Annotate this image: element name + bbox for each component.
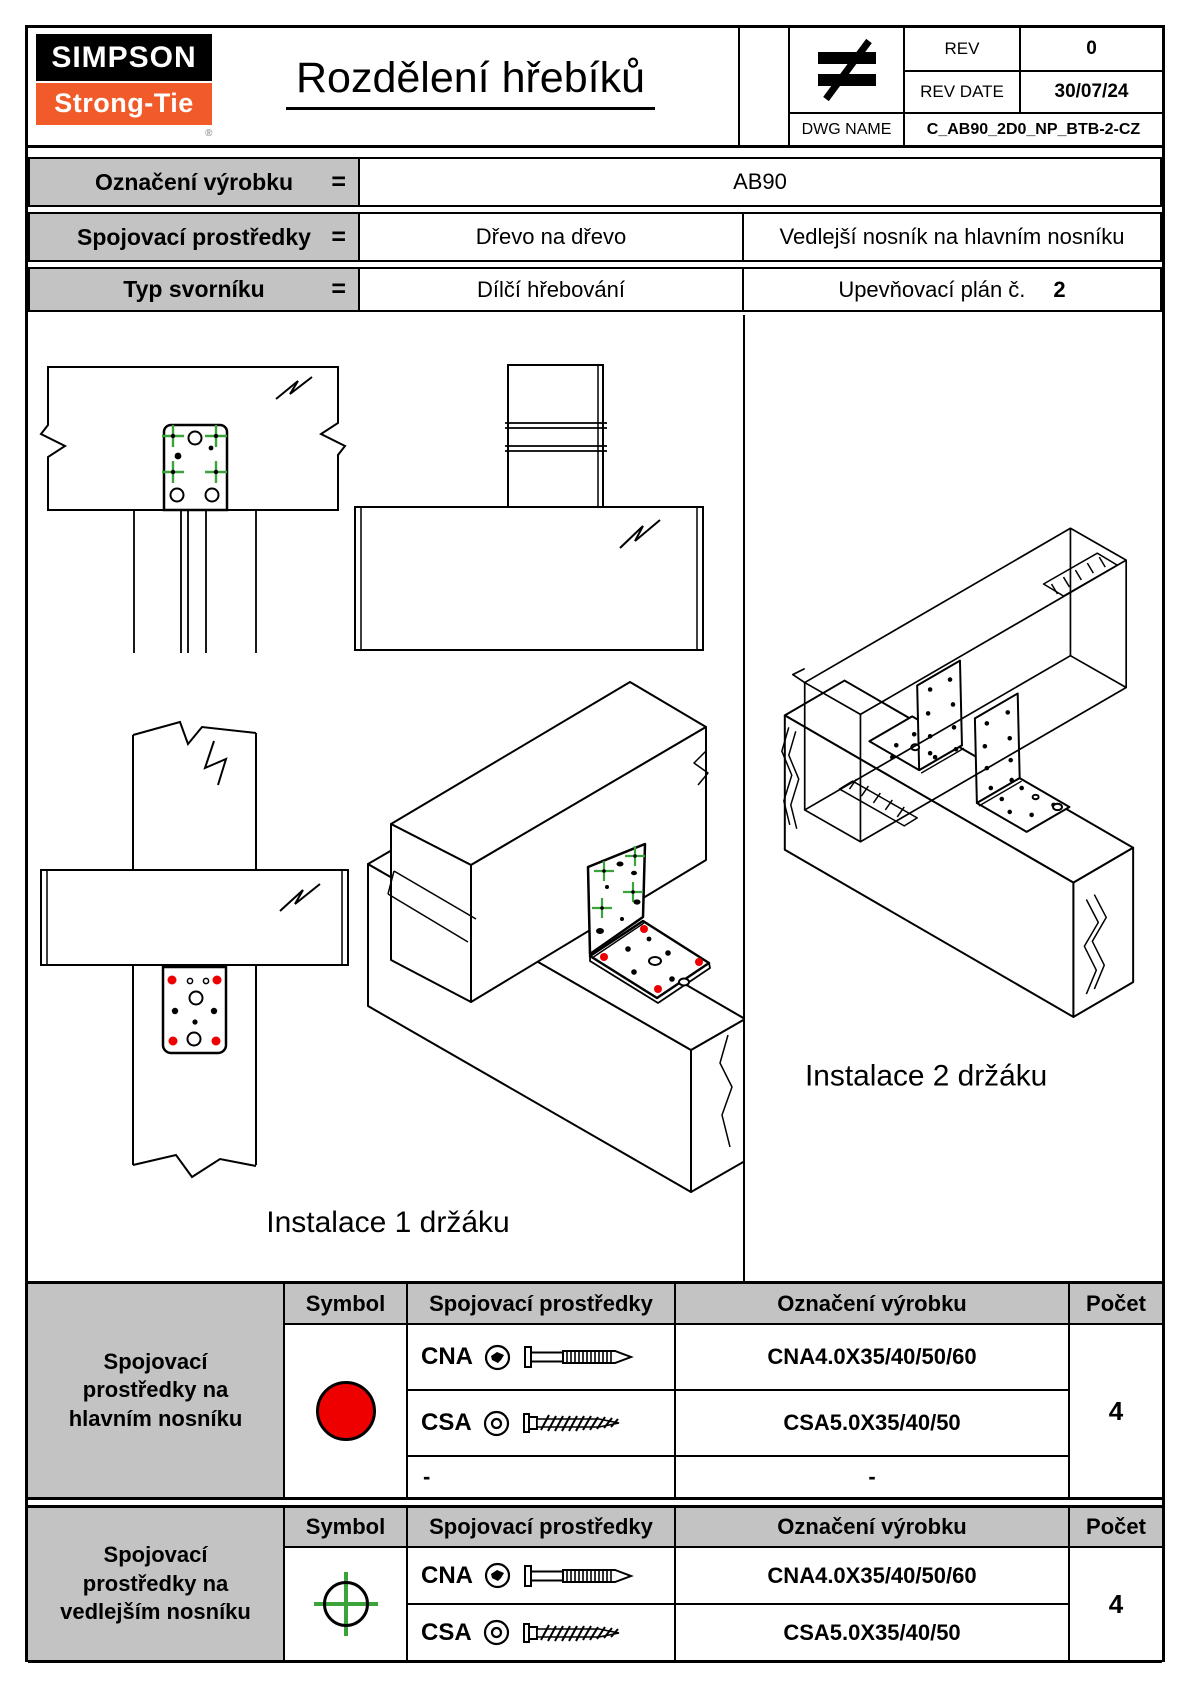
ring-shank-nail-icon (522, 1343, 638, 1371)
sheet-header: SIMPSON Strong-Tie ® Rozdělení hřebíků R… (28, 28, 1162, 148)
symbol-cell (283, 1546, 406, 1660)
product-cell: CSA5.0X35/40/50 (674, 1389, 1068, 1455)
logo-simpson: SIMPSON (36, 34, 212, 81)
drawing-area: Instalace 1 držáku (28, 315, 1162, 1281)
installation-2-drawing: Instalace 2 držáku (745, 315, 1162, 1281)
installation-1-drawing: Instalace 1 držáku (28, 315, 743, 1281)
product-cell: CSA5.0X35/40/50 (674, 1603, 1068, 1660)
angle-bracket-right (975, 694, 1070, 832)
column-header-product: Označení výrobku (674, 1508, 1068, 1546)
product-designation-value: AB90 (360, 159, 1160, 205)
fastener-table-main-beam: Spojovací prostředky na hlavním nosníku … (28, 1281, 1162, 1500)
info-label: Typ svorníku (123, 276, 264, 303)
group-label: Spojovací prostředky na hlavním nosníku (28, 1284, 283, 1497)
count-cell: 4 (1068, 1546, 1162, 1660)
connection-type-value: Vedlejší nosník na hlavním nosníku (742, 214, 1160, 260)
dwg-name-label: DWG NAME (790, 112, 903, 145)
fastener-cell: CNA (406, 1323, 674, 1389)
fastener-table-secondary-beam: Spojovací prostředky na vedlejším nosník… (28, 1505, 1162, 1663)
product-cell: CNA4.0X35/40/50/60 (674, 1323, 1068, 1389)
header-divider (738, 28, 740, 145)
group-label: Spojovací prostředky na vedlejším nosník… (28, 1508, 283, 1660)
cna-head-icon (484, 1562, 511, 1589)
isometric-view-1 (368, 682, 743, 1192)
revision-block: REV 0 REV DATE 30/07/24 DWG NAME C_AB90_… (788, 28, 1162, 145)
green-crosshair-icon (314, 1572, 378, 1636)
csa-head-icon (483, 1619, 510, 1646)
registered-mark: ® (205, 128, 213, 139)
not-equal-projection-icon (790, 28, 903, 112)
side-view (355, 365, 703, 650)
fastener-cell-empty: - (406, 1455, 674, 1497)
equals-sign: = (331, 168, 346, 197)
column-header-count: Počet (1068, 1284, 1162, 1323)
cna-head-icon (484, 1344, 511, 1371)
front-view (41, 722, 348, 1177)
wood-screw-icon (521, 1409, 637, 1437)
rev-value: 0 (1019, 28, 1162, 70)
sheet-frame: SIMPSON Strong-Tie ® Rozdělení hřebíků R… (25, 25, 1165, 1662)
installation-2-label: Instalace 2 držáku (805, 1060, 1047, 1093)
csa-head-icon (483, 1410, 510, 1437)
column-header-fastener: Spojovací prostředky (406, 1284, 674, 1323)
fastener-cell: CNA (406, 1546, 674, 1603)
dwg-name-value: C_AB90_2D0_NP_BTB-2-CZ (903, 112, 1162, 145)
rev-date-label: REV DATE (903, 70, 1019, 112)
equals-sign: = (331, 275, 346, 304)
rev-label: REV (903, 28, 1019, 70)
fixing-plan-label: Upevňovací plán č. (838, 277, 1025, 303)
info-row-fasteners: Spojovací prostředky = Dřevo na dřevo Ve… (28, 212, 1162, 262)
fastener-cell: CSA (406, 1603, 674, 1660)
fastener-type-value: Dřevo na dřevo (360, 214, 742, 260)
plan-view (41, 367, 345, 653)
column-header-symbol: Symbol (283, 1508, 406, 1546)
simpson-strongtie-logo: SIMPSON Strong-Tie ® (36, 34, 212, 125)
fastener-cell: CSA (406, 1389, 674, 1455)
drawing-sheet: SIMPSON Strong-Tie ® Rozdělení hřebíků R… (0, 0, 1190, 1682)
info-row-bolt-type: Typ svorníku = Dílčí hřebování Upevňovac… (28, 267, 1162, 312)
info-row-product: Označení výrobku = AB90 (28, 157, 1162, 207)
rev-date-value: 30/07/24 (1019, 70, 1162, 112)
installation-2-panel: Instalace 2 držáku (743, 315, 1162, 1281)
symbol-cell (283, 1323, 406, 1497)
column-header-product: Označení výrobku (674, 1284, 1068, 1323)
page-title: Rozdělení hřebíků (223, 54, 718, 110)
info-label: Spojovací prostředky (77, 224, 311, 251)
wood-screw-icon (521, 1619, 637, 1647)
nailing-type-value: Dílčí hřebování (360, 269, 742, 310)
product-cell: CNA4.0X35/40/50/60 (674, 1546, 1068, 1603)
equals-sign: = (331, 223, 346, 252)
installation-1-label: Instalace 1 držáku (266, 1206, 509, 1239)
column-header-fastener: Spojovací prostředky (406, 1508, 674, 1546)
column-header-count: Počet (1068, 1508, 1162, 1546)
red-dot-icon (316, 1381, 376, 1441)
product-cell-empty: - (674, 1455, 1068, 1497)
column-header-symbol: Symbol (283, 1284, 406, 1323)
fixing-plan-number: 2 (1053, 277, 1065, 303)
ring-shank-nail-icon (522, 1562, 638, 1590)
installation-1-panel: Instalace 1 držáku (28, 315, 743, 1281)
info-label: Označení výrobku (95, 169, 293, 196)
logo-strongtie: Strong-Tie ® (36, 83, 212, 125)
count-cell: 4 (1068, 1323, 1162, 1497)
